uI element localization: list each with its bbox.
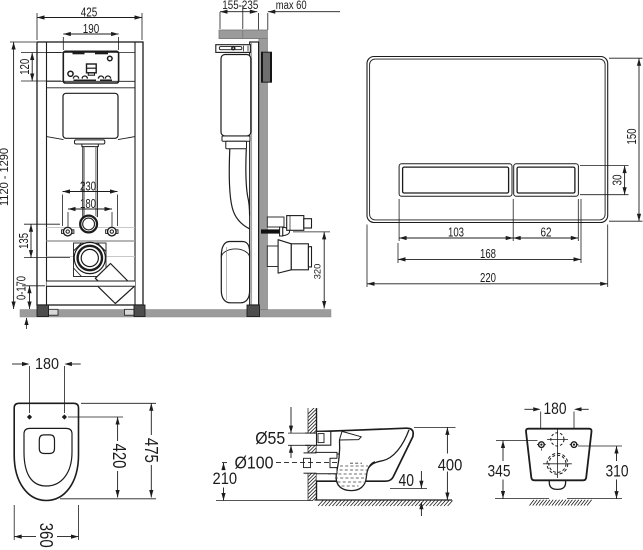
svg-text:135: 135 <box>17 233 31 249</box>
svg-text:310: 310 <box>606 462 629 480</box>
svg-text:360: 360 <box>36 523 56 548</box>
svg-text:62: 62 <box>541 225 552 240</box>
svg-text:210: 210 <box>213 469 238 488</box>
svg-text:30: 30 <box>610 175 625 186</box>
svg-text:425: 425 <box>81 5 98 19</box>
svg-text:155-235: 155-235 <box>222 0 258 12</box>
svg-text:400: 400 <box>438 456 463 475</box>
svg-text:180: 180 <box>35 356 59 373</box>
svg-text:180: 180 <box>544 400 567 418</box>
svg-text:120: 120 <box>18 59 32 75</box>
svg-text:max 60: max 60 <box>276 0 307 12</box>
svg-text:180: 180 <box>80 197 96 211</box>
svg-text:150: 150 <box>624 129 639 145</box>
svg-text:320: 320 <box>313 264 324 280</box>
svg-text:220: 220 <box>480 270 496 285</box>
svg-text:420: 420 <box>109 444 129 469</box>
svg-text:1120 - 1290: 1120 - 1290 <box>0 148 11 206</box>
svg-text:345: 345 <box>488 462 511 480</box>
svg-text:230: 230 <box>80 180 96 194</box>
svg-text:168: 168 <box>480 246 496 261</box>
svg-text:Ø100: Ø100 <box>235 453 274 473</box>
svg-text:103: 103 <box>448 225 464 240</box>
svg-text:475: 475 <box>141 438 161 463</box>
svg-text:Ø55: Ø55 <box>255 428 285 448</box>
svg-text:0-170: 0-170 <box>15 276 29 300</box>
svg-text:190: 190 <box>83 22 100 36</box>
svg-text:40: 40 <box>399 470 415 490</box>
